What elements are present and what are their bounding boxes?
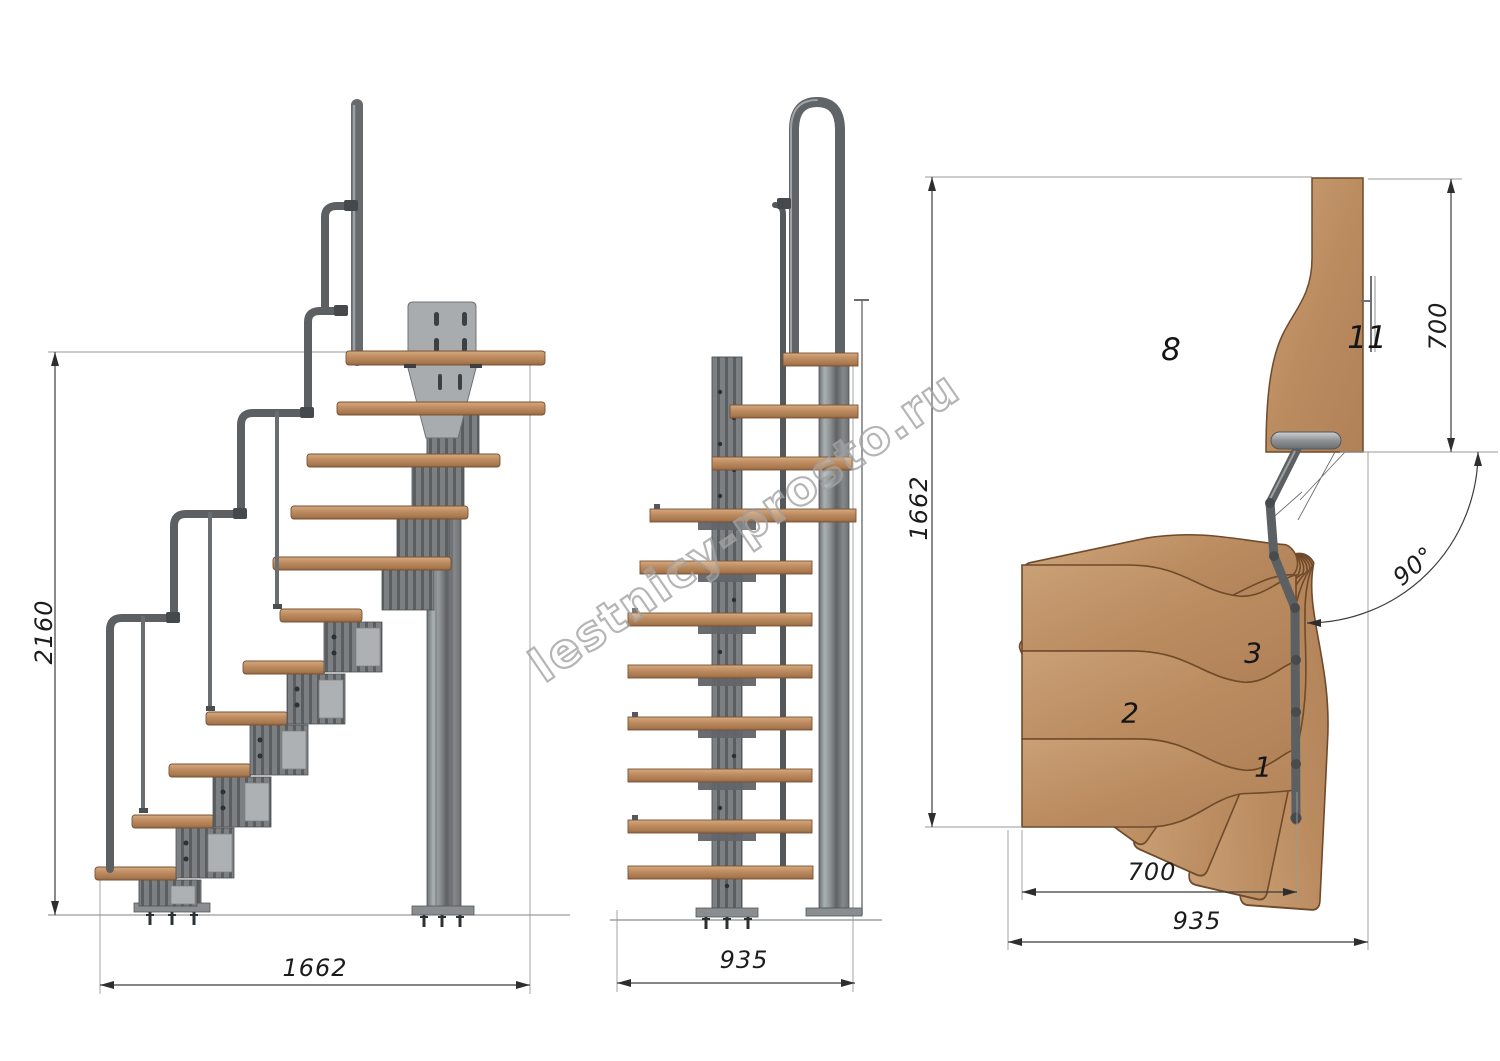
plan-total-width-dimension-label: 935	[1173, 907, 1222, 935]
staircase-drawing-canvas: 2160 1662 935 1662 700 90° 700 935 1 2 3…	[0, 0, 1500, 1061]
plan-step-number-8: 8	[1161, 332, 1181, 368]
side-height-dimension-label: 2160	[30, 599, 58, 664]
plan-landing-strip	[1266, 178, 1363, 452]
plan-exit-width-dimension-label: 700	[1424, 302, 1452, 351]
plan-view-drawing	[1014, 178, 1375, 910]
plan-step-number-2: 2	[1121, 697, 1139, 730]
plan-tread-width-dimension-label: 700	[1128, 858, 1177, 886]
side-lower-flight	[95, 609, 382, 925]
plan-step-number-3: 3	[1244, 637, 1262, 670]
side-elevation-drawing	[48, 105, 570, 994]
side-length-dimension-label: 1662	[282, 954, 347, 982]
front-width-dimension-label: 935	[720, 946, 769, 974]
turn-angle-arc	[1307, 452, 1478, 623]
plan-step-number-11: 11	[1347, 320, 1386, 356]
plan-step-number-1: 1	[1254, 751, 1272, 784]
plan-depth-dimension-label: 1662	[905, 475, 933, 540]
plan-straight-steps	[1022, 565, 1297, 827]
